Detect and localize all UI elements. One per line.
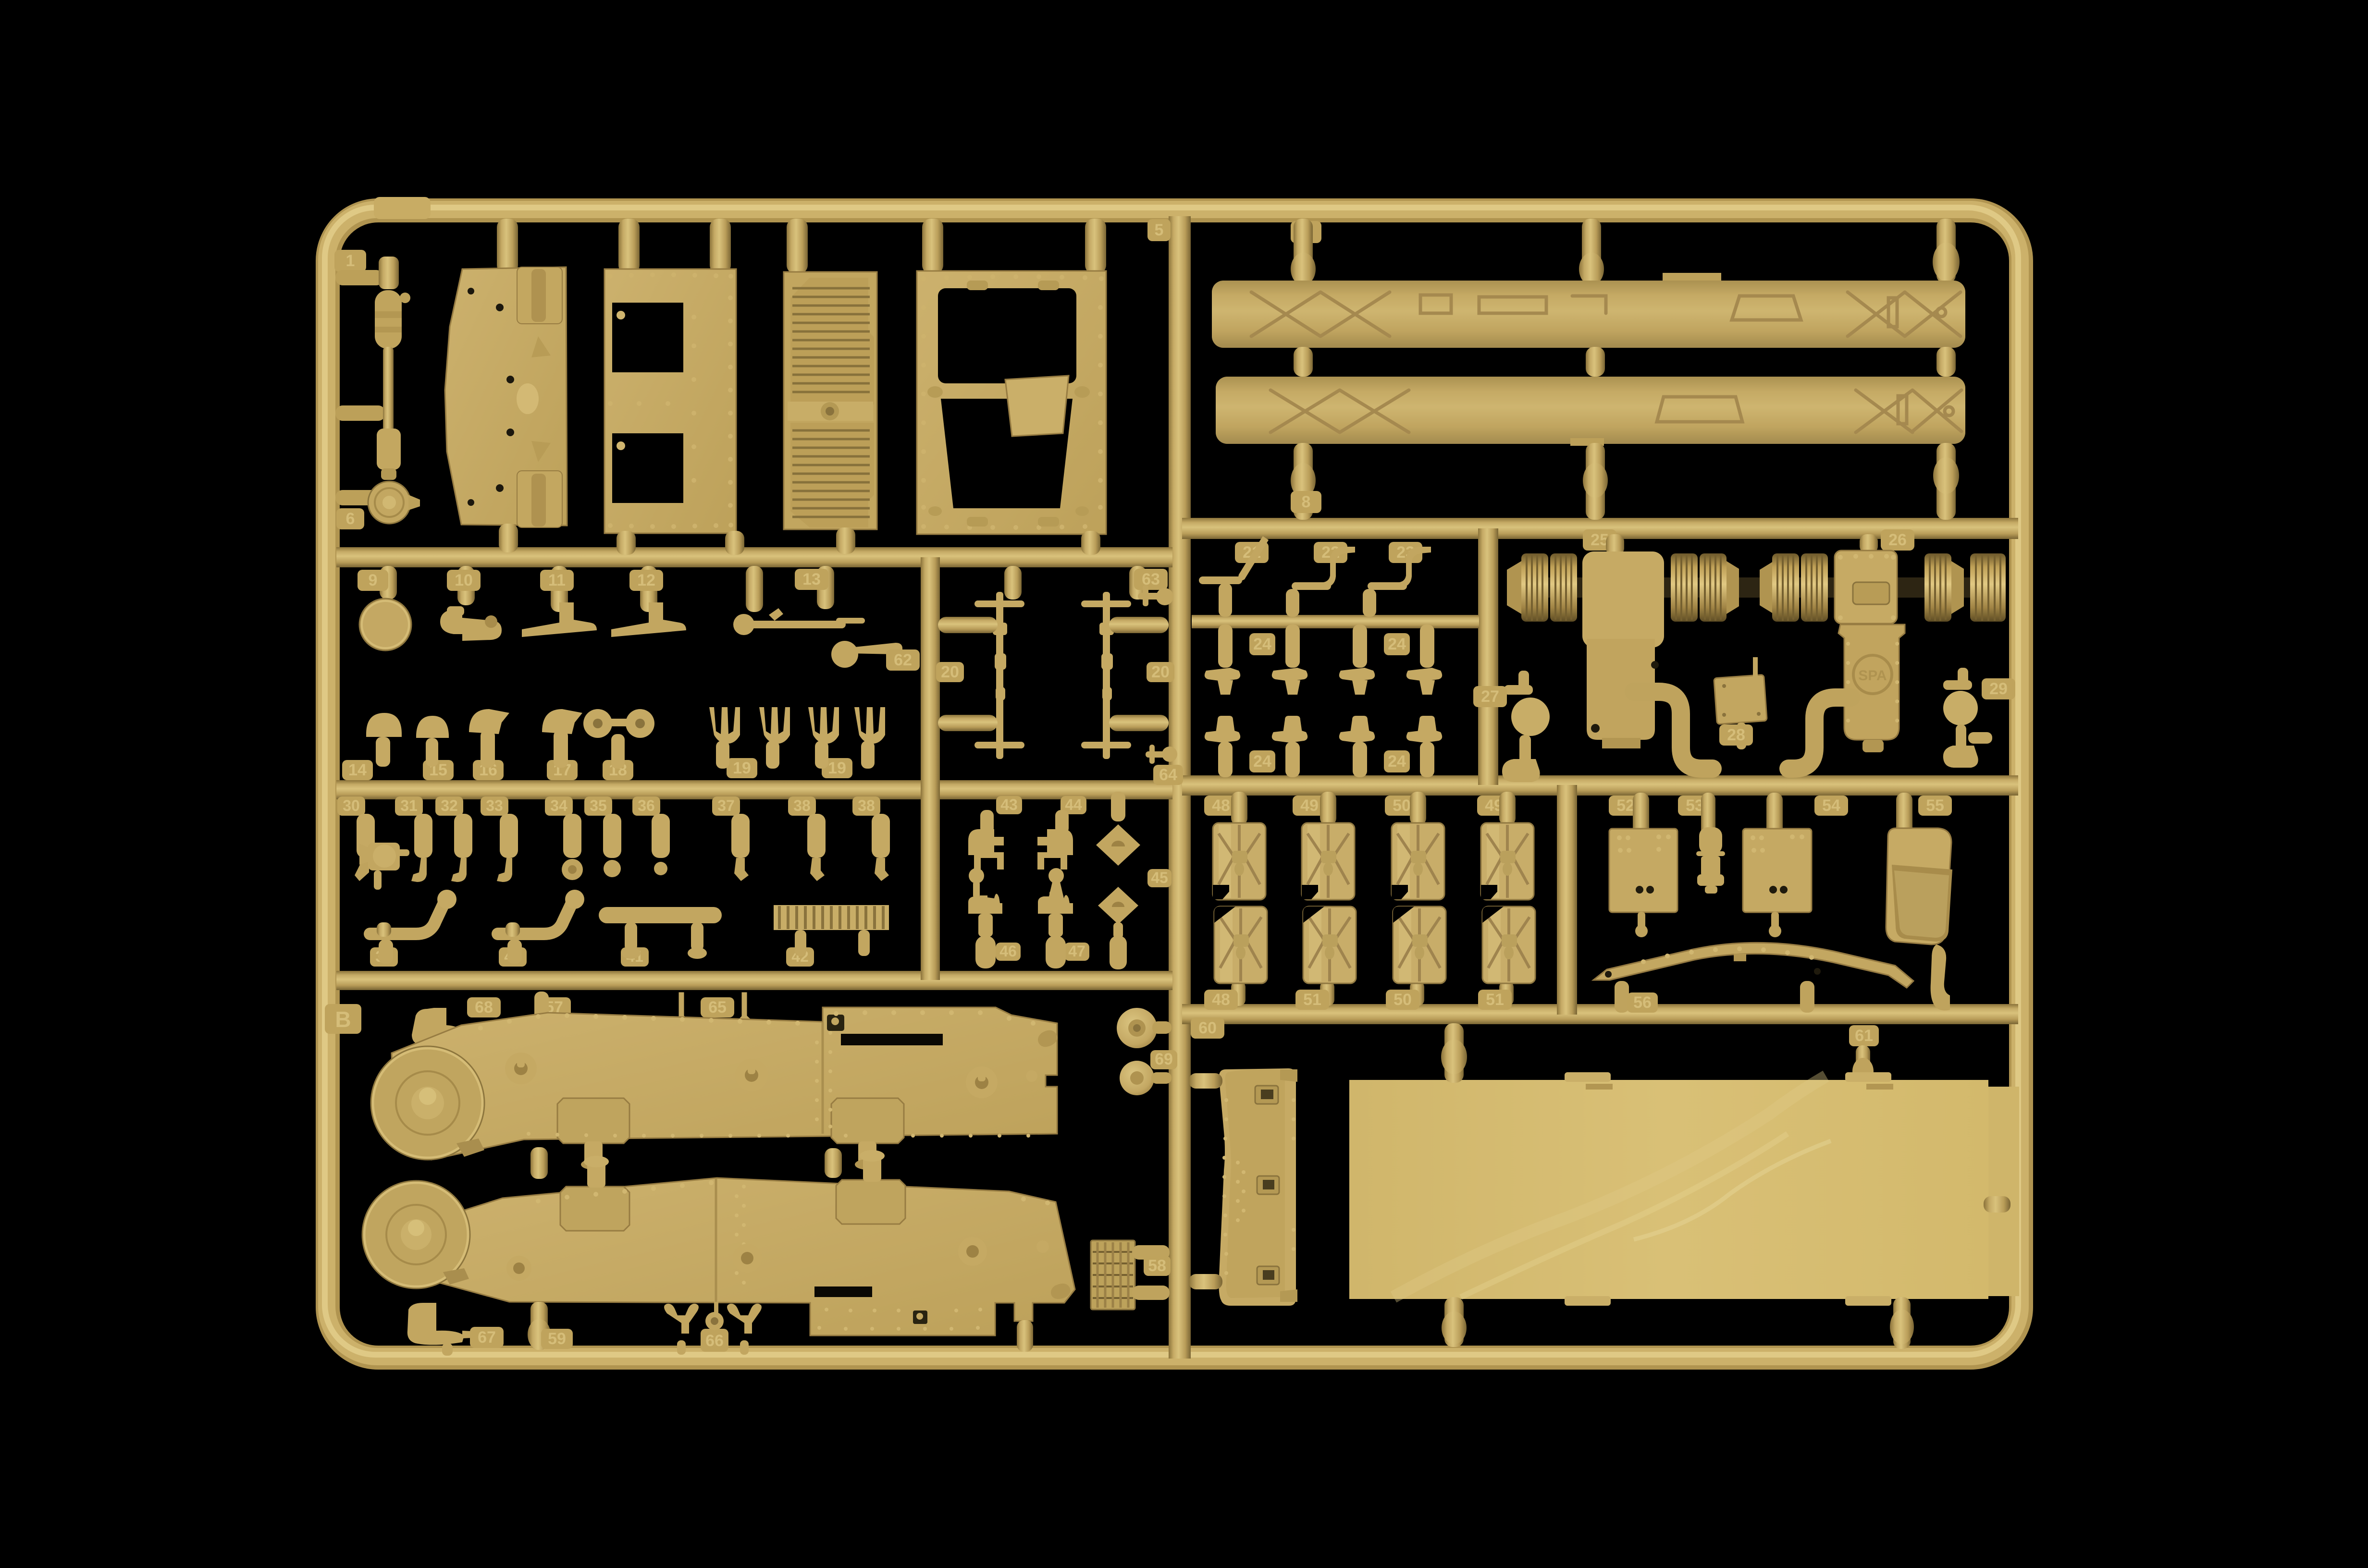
svg-text:B: B: [335, 1007, 351, 1032]
svg-text:38: 38: [858, 797, 875, 814]
svg-text:50: 50: [1394, 991, 1412, 1009]
svg-text:50: 50: [1393, 796, 1411, 815]
svg-text:44: 44: [1065, 796, 1082, 813]
svg-text:66: 66: [705, 1332, 724, 1350]
svg-text:26: 26: [1888, 531, 1907, 549]
svg-text:54: 54: [1822, 796, 1840, 815]
svg-text:8: 8: [1302, 493, 1311, 511]
svg-text:19: 19: [733, 759, 751, 777]
svg-text:28: 28: [1727, 726, 1745, 744]
svg-text:27: 27: [1481, 687, 1499, 706]
svg-text:56: 56: [1633, 993, 1652, 1012]
svg-text:12: 12: [637, 571, 655, 589]
svg-text:19: 19: [828, 759, 846, 777]
svg-text:68: 68: [475, 998, 493, 1017]
svg-text:62: 62: [894, 651, 912, 669]
svg-text:30: 30: [343, 797, 360, 814]
svg-text:37: 37: [717, 797, 735, 814]
svg-text:43: 43: [1000, 796, 1018, 813]
svg-text:14: 14: [348, 761, 367, 779]
svg-text:60: 60: [1198, 1019, 1217, 1037]
svg-text:31: 31: [400, 797, 418, 814]
svg-text:47: 47: [1068, 943, 1085, 960]
svg-text:69: 69: [1155, 1050, 1173, 1068]
svg-text:24: 24: [1253, 635, 1271, 653]
svg-text:45: 45: [1151, 869, 1168, 886]
svg-text:29: 29: [1989, 680, 2008, 698]
svg-text:65: 65: [708, 998, 727, 1017]
svg-text:46: 46: [999, 943, 1017, 960]
svg-text:35: 35: [590, 797, 607, 814]
svg-text:51: 51: [1303, 991, 1321, 1009]
svg-text:24: 24: [1388, 635, 1406, 653]
svg-text:51: 51: [1486, 991, 1504, 1009]
svg-text:59: 59: [548, 1330, 566, 1348]
svg-text:49: 49: [1300, 796, 1319, 815]
svg-text:11: 11: [548, 571, 566, 589]
svg-text:24: 24: [1388, 752, 1406, 771]
svg-text:33: 33: [486, 797, 503, 814]
svg-text:10: 10: [455, 571, 473, 589]
svg-text:24: 24: [1253, 752, 1271, 771]
svg-text:9: 9: [369, 571, 378, 589]
svg-text:6: 6: [346, 510, 355, 528]
svg-text:48: 48: [1212, 991, 1230, 1009]
svg-text:SPA: SPA: [1858, 668, 1887, 684]
svg-text:61: 61: [1855, 1027, 1873, 1045]
svg-text:5: 5: [1155, 221, 1164, 239]
svg-text:58: 58: [1148, 1257, 1166, 1275]
svg-text:1: 1: [346, 252, 355, 270]
svg-text:52: 52: [1616, 796, 1635, 815]
svg-text:67: 67: [478, 1328, 496, 1347]
svg-text:64: 64: [1159, 766, 1177, 784]
svg-text:48: 48: [1212, 796, 1230, 815]
svg-text:13: 13: [802, 570, 821, 588]
svg-text:34: 34: [550, 797, 567, 814]
svg-text:20: 20: [941, 663, 959, 681]
svg-text:20: 20: [1151, 663, 1170, 681]
svg-text:36: 36: [638, 797, 655, 814]
svg-text:38: 38: [793, 797, 811, 814]
svg-text:55: 55: [1926, 796, 1944, 815]
svg-text:32: 32: [441, 797, 458, 814]
